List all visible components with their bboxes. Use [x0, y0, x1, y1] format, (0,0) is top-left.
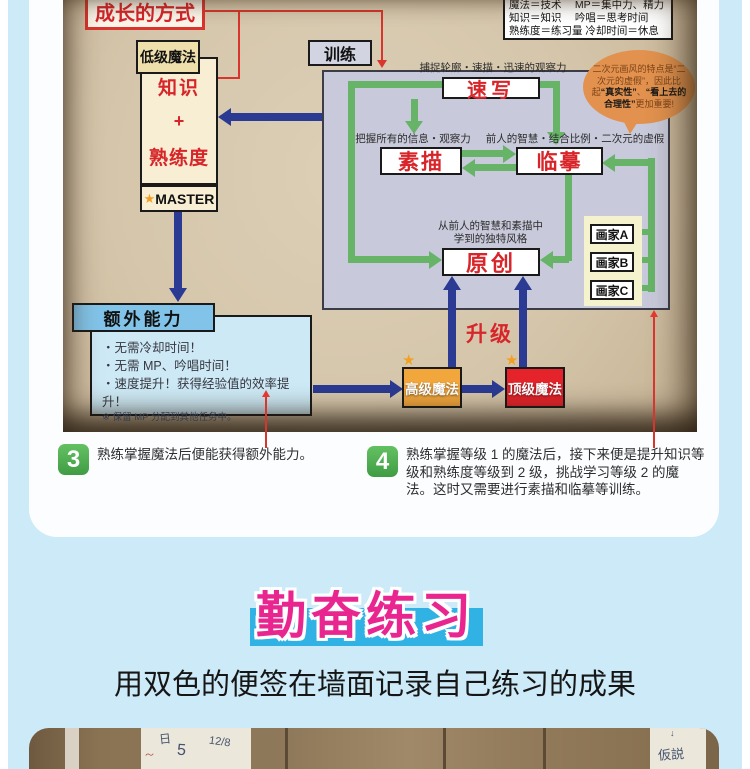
low-magic-text: 低级魔法 [140, 47, 196, 67]
green-arrow-drawing-to-copy [503, 145, 516, 163]
pointer-line-note4 [653, 316, 655, 448]
diagram-photo: 成长的方式 魔法＝技术 MP＝集中力、精力 知识＝知识 吟唱＝思考时间 熟练度＝… [63, 0, 697, 432]
caption-copy: 前人的智慧・结合比例・二次元的虚假 [480, 133, 670, 145]
note4-number: 4 [376, 448, 389, 476]
extra-ability-header: 额外能力 [72, 303, 215, 332]
pointer-line-note3 [265, 396, 267, 448]
low-magic-label: 低级魔法 [136, 40, 200, 74]
top-magic-box: 顶级魔法 [505, 367, 565, 408]
green-arrow-into-copy-right [602, 154, 615, 172]
original-box: 原创 [442, 248, 540, 276]
handwriting-red: 〜 [144, 747, 155, 761]
caption-sketch: 捕捉轮廓・速描・迅速的观察力 [393, 62, 593, 74]
extra-bullet: ・无需冷却时间！ [102, 339, 202, 357]
sticky-note-left: 日 5 12/8 〜 [141, 728, 251, 769]
top-magic-label: 顶级魔法 [508, 378, 562, 398]
pointer-arrow-note3 [262, 390, 270, 397]
note4-badge: 4 [367, 446, 398, 477]
green-line [462, 150, 504, 157]
note3-text: 熟练掌握魔法后便能获得额外能力。 [97, 446, 365, 464]
green-arrow-into-original-left [429, 251, 442, 269]
content-card: 成长的方式 魔法＝技术 MP＝集中力、精力 知识＝知识 吟唱＝思考时间 熟练度＝… [29, 0, 719, 537]
plank-seam [285, 728, 288, 769]
growth-title-box: 成长的方式 [85, 0, 205, 30]
navy-arrow-into-knowledge [218, 108, 231, 126]
drawing-label: 素描 [398, 146, 444, 176]
navy-line-advanced-to-top [462, 385, 493, 393]
bubble-text: 更加重要! [636, 99, 675, 109]
drawing-box: 素描 [380, 147, 462, 175]
green-line [475, 164, 516, 171]
note3-badge: 3 [58, 444, 89, 475]
copy-label: 临摹 [537, 146, 583, 176]
connector-arrow [377, 60, 387, 68]
navy-line-master-down [174, 212, 182, 288]
handwriting: 日 [158, 729, 172, 747]
note3-number: 3 [67, 446, 80, 474]
advanced-magic-label: 高级魔法 [405, 378, 459, 398]
green-arrow-copy-to-drawing [462, 159, 475, 177]
green-line [565, 175, 572, 261]
painter-b-box: 画家B [590, 252, 634, 272]
handwriting: ↓ [670, 728, 675, 738]
connector-line [203, 10, 381, 12]
green-line-painters [648, 158, 655, 292]
legend-box: 魔法＝技术 MP＝集中力、精力 知识＝知识 吟唱＝思考时间 熟练度＝练习量 冷却… [503, 0, 673, 40]
green-line [348, 81, 442, 88]
bubble-bold: “真实性” [601, 87, 637, 97]
navy-arrow-up-1 [443, 276, 461, 290]
training-label: 训练 [324, 41, 356, 65]
extra-ability-label: 额外能力 [104, 305, 184, 330]
connector-line [381, 10, 383, 60]
handwriting: 5 [176, 742, 186, 761]
advanced-magic-box: 高级魔法 [402, 367, 462, 408]
pointer-arrow-note4 [650, 310, 658, 317]
handwriting: 12/8 [208, 735, 231, 750]
handwriting: 仮説 [657, 743, 684, 764]
original-label: 原创 [466, 246, 516, 278]
copy-box: 临摹 [516, 147, 603, 175]
painter-a-label: 画家A [596, 226, 629, 243]
wall-photo-strip: 日 5 12/8 〜 仮説 ↓ [29, 728, 719, 769]
green-arrow-into-original-right [540, 251, 553, 269]
green-line [348, 81, 355, 259]
page: 成长的方式 魔法＝技术 MP＝集中力、精力 知识＝知识 吟唱＝思考时间 熟练度＝… [0, 0, 750, 769]
extra-bullet: ・速度提升！获得经验值的效率提升！ [102, 375, 310, 411]
star-icon: ★ [144, 191, 156, 207]
legend-row: 知识＝知识 吟唱＝思考时间 [509, 12, 648, 25]
note4-text: 熟练掌握等级 1 的魔法后，接下来便是提升知识等级和熟练度等级到 2 级，挑战学… [406, 446, 706, 499]
caption-original-1: 从前人的智慧和素描中 [403, 220, 578, 232]
green-line [411, 99, 418, 121]
knowledge-box: 知识 + 熟练度 [140, 57, 218, 185]
speech-bubble: 二次元画风的特点是“二次元的虚假”，因此比起“真实性”、“看上去的合理性”更加重… [583, 50, 695, 124]
plank-seam [443, 728, 446, 769]
painter-b-label: 画家B [596, 254, 629, 271]
master-box: ★ MASTER [140, 185, 218, 212]
legend-row: 魔法＝技术 MP＝集中力、精力 [509, 0, 664, 12]
plank-seam [543, 728, 546, 769]
knowledge-plus: + [174, 111, 185, 132]
green-line [553, 81, 560, 132]
green-line [615, 159, 651, 166]
navy-arrow-up-2 [514, 276, 532, 290]
caption-drawing: 把握所有的信息・观察力 [343, 133, 483, 145]
navy-arrow-into-extra [169, 288, 187, 302]
green-line [348, 256, 430, 263]
extra-note: ※ 保留 MP 分配到其他任务中。 [102, 411, 236, 425]
navy-arrow-into-top [492, 380, 505, 398]
upgrade-label: 升级 [444, 318, 536, 348]
master-label: MASTER [155, 191, 214, 207]
green-line [552, 256, 569, 263]
connector-line [238, 10, 240, 78]
painter-c-box: 画家C [590, 280, 634, 300]
navy-line-training-to-knowledge [231, 113, 322, 121]
knowledge-line2: 熟练度 [149, 143, 209, 170]
growth-title: 成长的方式 [95, 0, 195, 26]
caption-original-2: 学到的独特风格 [403, 233, 578, 245]
painter-a-box: 画家A [590, 224, 634, 244]
navy-line-extra-to-advanced [313, 385, 391, 393]
painter-c-label: 画家C [596, 282, 629, 299]
knowledge-line1: 知识 [158, 73, 200, 100]
legend-row: 熟练度＝练习量 冷却时间＝休息 [509, 25, 659, 38]
sketch-box: 速写 [442, 77, 540, 99]
bubble-text: 、 [637, 87, 646, 97]
extra-bullet: ・无需 MP、吟唱时间！ [102, 357, 237, 375]
training-label-box: 训练 [308, 40, 372, 66]
section-title: 勤奋练习 [186, 576, 546, 648]
section-subtitle: 用双色的便签在墙面记录自己练习的成果 [0, 661, 750, 703]
bubble-tail [623, 120, 639, 134]
sticky-note-edge [65, 728, 79, 769]
sticky-note-right: 仮説 ↓ [650, 728, 706, 769]
sketch-label: 速写 [467, 74, 515, 103]
